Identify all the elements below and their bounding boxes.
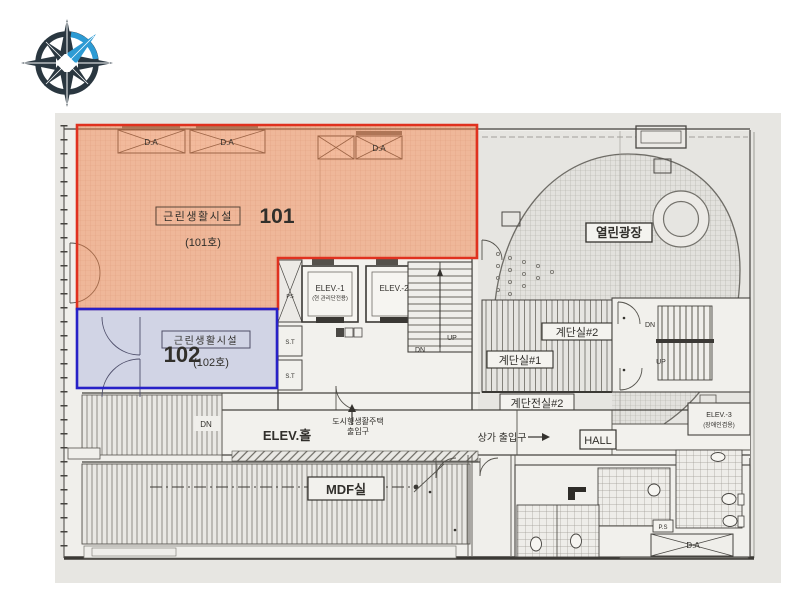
label-dn-ramp: DN bbox=[200, 420, 212, 429]
screenshot-stage: 근린생활시설 (101호) 101 근린생활시설 (102호) 102 열린광장… bbox=[0, 0, 798, 600]
label-mdf: MDF실 bbox=[326, 482, 366, 497]
toilet bbox=[723, 516, 737, 527]
label-housing-entrance-1: 도시형생활주택 bbox=[332, 416, 384, 426]
label-stair-vestibule-2: 계단전실#2 bbox=[511, 397, 564, 410]
compass-rose bbox=[21, 19, 113, 107]
label-up-main-stair: UP bbox=[447, 335, 457, 342]
label-da-4: D.A bbox=[686, 541, 700, 550]
label-elev-1: ELEV.-1 bbox=[315, 284, 345, 293]
label-up-right-stair: UP bbox=[656, 359, 666, 366]
label-elev-3-note: (장애인겸용) bbox=[703, 421, 735, 429]
elev3-box bbox=[688, 403, 750, 435]
label-ps: PS bbox=[286, 294, 294, 300]
toilet bbox=[571, 534, 582, 548]
label-dn-right-stair: DN bbox=[645, 322, 655, 329]
label-elev-1-note: (현 관리단전용) bbox=[312, 294, 348, 302]
label-shop-entrance: 상가 출입구 bbox=[478, 431, 527, 444]
floorplan-canvas: 근린생활시설 (101호) 101 근린생활시설 (102호) 102 열린광장… bbox=[0, 0, 798, 600]
label-housing-entrance-2: 출입구 bbox=[347, 426, 369, 436]
toilet bbox=[531, 537, 542, 551]
elevator-core bbox=[278, 240, 502, 412]
label-elev-2: ELEV.-2 bbox=[379, 284, 409, 293]
label-stair-room-1: 계단실#1 bbox=[499, 354, 542, 367]
label-ps-2: P.S bbox=[659, 525, 668, 531]
label-elev-3: ELEV.-3 bbox=[706, 412, 732, 419]
label-stair-room-2: 계단실#2 bbox=[556, 326, 599, 339]
label-plaza: 열린광장 bbox=[596, 225, 643, 240]
main-stair bbox=[408, 262, 472, 352]
label-da-1: D.A bbox=[144, 138, 158, 147]
label-101-unit: (101호) bbox=[185, 236, 221, 249]
label-da-3: D.A bbox=[372, 144, 386, 153]
label-elev-hall: ELEV.홀 bbox=[263, 428, 311, 443]
label-da-2: D.A bbox=[220, 138, 234, 147]
label-101-name: 근린생활시설 bbox=[163, 209, 233, 223]
label-dn-main-stair: DN bbox=[415, 347, 425, 354]
label-st-1: S.T bbox=[285, 340, 295, 346]
label-101-badge: 101 bbox=[259, 205, 294, 228]
label-102-badge: 102 bbox=[164, 342, 201, 367]
entry-mat bbox=[232, 451, 478, 461]
label-hall: HALL bbox=[584, 435, 612, 447]
toilet bbox=[722, 494, 736, 505]
label-st-2: S.T bbox=[285, 374, 295, 380]
right-stair bbox=[612, 298, 750, 392]
